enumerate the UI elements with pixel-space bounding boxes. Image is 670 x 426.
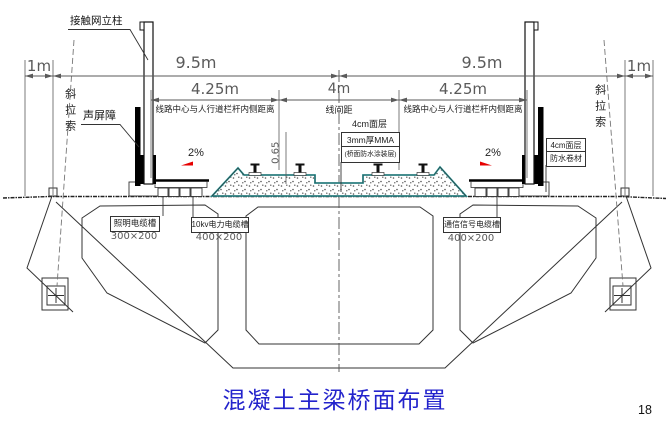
trough-lighting-size: 300×200 xyxy=(110,231,158,243)
trough-signal-size: 400×200 xyxy=(443,233,499,245)
rail xyxy=(372,164,384,176)
trough-signal-name: 通信信号电缆槽 xyxy=(443,217,501,233)
dim-half-left: 9.5m xyxy=(146,54,246,72)
dim-offset-right: 4.25m xyxy=(403,81,523,98)
page-number: 18 xyxy=(625,403,665,417)
center-layer-coating: (桥面防水涂装层) xyxy=(341,146,400,163)
dim-offset-left: 4.25m xyxy=(155,81,275,98)
slide-title: 混凝土主梁桥面布置 xyxy=(0,388,670,414)
dim-track-spacing: 4m xyxy=(311,81,367,97)
rail xyxy=(249,164,261,176)
dim-half-right: 9.5m xyxy=(432,54,532,72)
slope-label-right: 2% xyxy=(480,147,506,160)
spacing-desc: 线间距 xyxy=(317,105,361,115)
offset-desc-right: 线路中心与人行道栏杆内侧距离 xyxy=(399,105,527,115)
dim-edge-left: 1m xyxy=(22,58,56,75)
center-layer-surface: 4cm面层 xyxy=(341,119,398,133)
stay-cable-label-left: 斜拉索 xyxy=(63,88,76,172)
dim-slab-height: 0.65 xyxy=(270,135,282,171)
catenary-pole-label: 接触网立柱 xyxy=(70,15,134,27)
offset-desc-left: 线路中心与人行道栏杆内侧距离 xyxy=(151,105,279,115)
dim-edge-right: 1m xyxy=(622,58,656,75)
slide: 接触网立柱 1m 9.5m 9.5m 1m 4.25m 4m 4.25m 线路中… xyxy=(0,0,670,426)
rail xyxy=(294,164,306,176)
cross-section-drawing xyxy=(0,0,670,426)
cable-anchor-left xyxy=(42,278,68,310)
trough-lighting-name: 照明电缆槽 xyxy=(110,216,160,232)
right-layer-membrane: 防水卷材 xyxy=(546,151,586,167)
rail xyxy=(417,164,429,176)
sound-barrier-label: 声屏障 xyxy=(83,110,123,123)
slope-marks xyxy=(181,162,492,166)
slope-label-left: 2% xyxy=(183,147,209,160)
trough-power-size: 400×200 xyxy=(191,232,247,244)
trough-power-name: 10kv电力电缆槽 xyxy=(191,217,249,233)
stay-cable-label-right: 斜拉索 xyxy=(593,84,606,168)
girder-outline xyxy=(27,188,651,368)
